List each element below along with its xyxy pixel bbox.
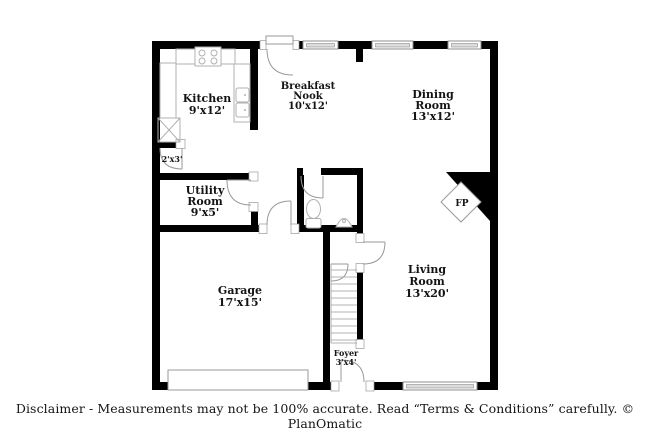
bathroom-fixtures [306, 200, 352, 229]
garage-door [168, 370, 308, 390]
kitchen-dims: 9'x12' [189, 104, 225, 117]
kitchen-label: Kitchen 9'x12' [183, 92, 232, 117]
foyer-label: Foyer 3'x4' [334, 348, 359, 367]
wall-bath-top-east [321, 168, 363, 175]
disclaimer-text: Disclaimer - Measurements may not be 100… [0, 401, 650, 431]
wall-garage-top-west [152, 225, 267, 232]
living-room-label: Living Room 13'x20' [405, 263, 449, 300]
utility-room-label: Utility Room 9'x5' [186, 184, 225, 219]
stove-icon [195, 47, 221, 66]
wall-nook-dining-stub [356, 49, 363, 62]
fireplace-label: FP [455, 199, 468, 209]
wall-exterior-left [152, 41, 160, 390]
foyer-dims: 3'x4' [336, 357, 357, 367]
utility-dims: 9'x5' [191, 206, 220, 219]
dining-dims: 13'x12' [411, 110, 455, 123]
bathroom-door [301, 176, 323, 198]
fireplace [441, 172, 490, 222]
toilet-icon [306, 200, 321, 229]
wall-bath-right [357, 168, 363, 242]
nook-dims: 10'x12' [288, 101, 328, 112]
dining-room-label: Dining Room 13'x12' [411, 88, 455, 123]
wall-garage-right [323, 225, 330, 390]
floorplan-drawing: Kitchen 9'x12' Breakfast Nook 10'x12' Di… [0, 0, 650, 434]
living-room-door [363, 242, 385, 264]
pantry-icon [158, 118, 180, 142]
floorplan-page: Kitchen 9'x12' Breakfast Nook 10'x12' Di… [0, 0, 650, 434]
nook-exterior-door [266, 36, 293, 75]
bath-sink-icon [336, 219, 352, 228]
kitchen-sink-icon [236, 88, 249, 117]
garage-entry-door [267, 201, 291, 225]
living-dims: 13'x20' [405, 287, 449, 300]
wall-exterior-right [490, 41, 498, 390]
counter-left [160, 63, 176, 118]
wall-bath-left [297, 175, 304, 232]
closet-dims: 2'x3' [162, 154, 183, 164]
stair-door [331, 264, 348, 281]
utility-door [227, 180, 251, 205]
opening-front-door [338, 382, 367, 390]
garage-dims: 17'x15' [218, 296, 262, 309]
wall-utility-top [152, 173, 258, 180]
breakfast-nook-label: Breakfast Nook 10'x12' [281, 81, 336, 112]
wall-stair-right [357, 265, 363, 343]
garage-label: Garage 17'x15' [218, 284, 262, 309]
wall-bath-top-west [297, 168, 303, 175]
wall-kitchen-right [250, 49, 258, 130]
